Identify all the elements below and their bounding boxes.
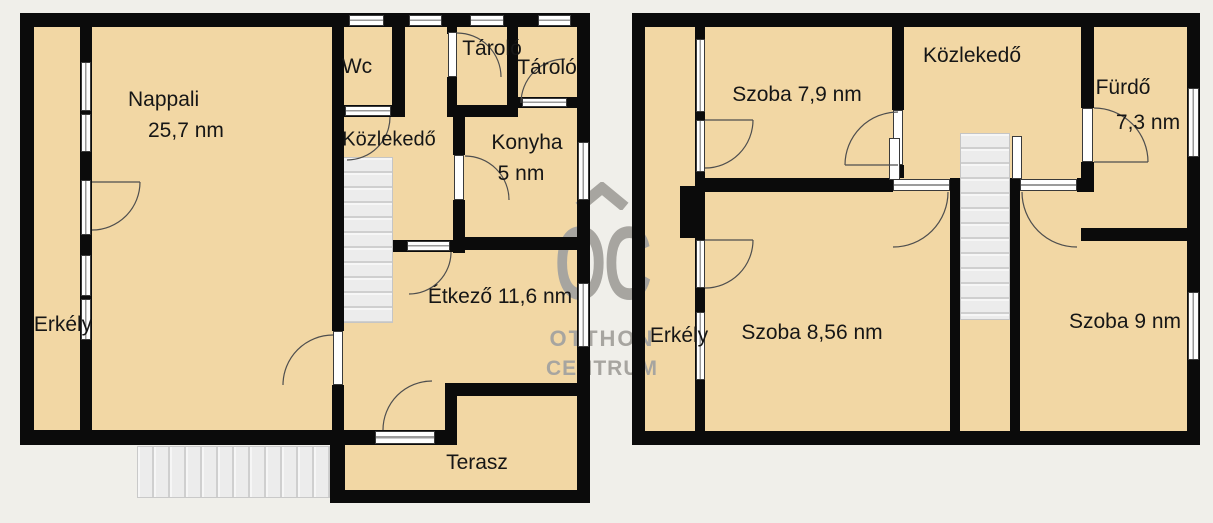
room-label-tarolo-1: Tároló [462, 37, 522, 61]
room-label-szoba-9: Szoba 9 nm [1069, 310, 1181, 334]
room-label-wc: Wc [342, 55, 372, 79]
room-label-kozlekedo-right: Közlekedő [923, 44, 1021, 68]
room-label-terasz: Terasz [446, 451, 508, 475]
room-name: Nappali [128, 88, 224, 112]
room-label-erkely-left: Erkély [34, 313, 92, 337]
door-swing-arcs [0, 0, 1213, 523]
room-label-etkezo: Étkező 11,6 nm [428, 285, 572, 309]
room-label-konyha: Konyha [491, 131, 562, 155]
room-area-furdo: 7,3 nm [1116, 111, 1180, 135]
floorplan-page: Nappali 25,7 nm Wc Tároló Tároló Közleke… [0, 0, 1213, 523]
room-area-konyha: 5 nm [498, 162, 545, 186]
room-label-tarolo-2: Tároló [517, 56, 577, 80]
room-label-furdo: Fürdő [1096, 76, 1151, 100]
room-label-nappali: Nappali 25,7 nm [128, 88, 224, 143]
room-label-szoba-856: Szoba 8,56 nm [741, 321, 882, 345]
room-area: 25,7 nm [148, 119, 224, 143]
room-label-erkely-right: Erkély [650, 324, 708, 348]
room-label-szoba-79: Szoba 7,9 nm [732, 83, 862, 107]
room-label-kozlekedo-left: Közlekedő [342, 129, 435, 152]
